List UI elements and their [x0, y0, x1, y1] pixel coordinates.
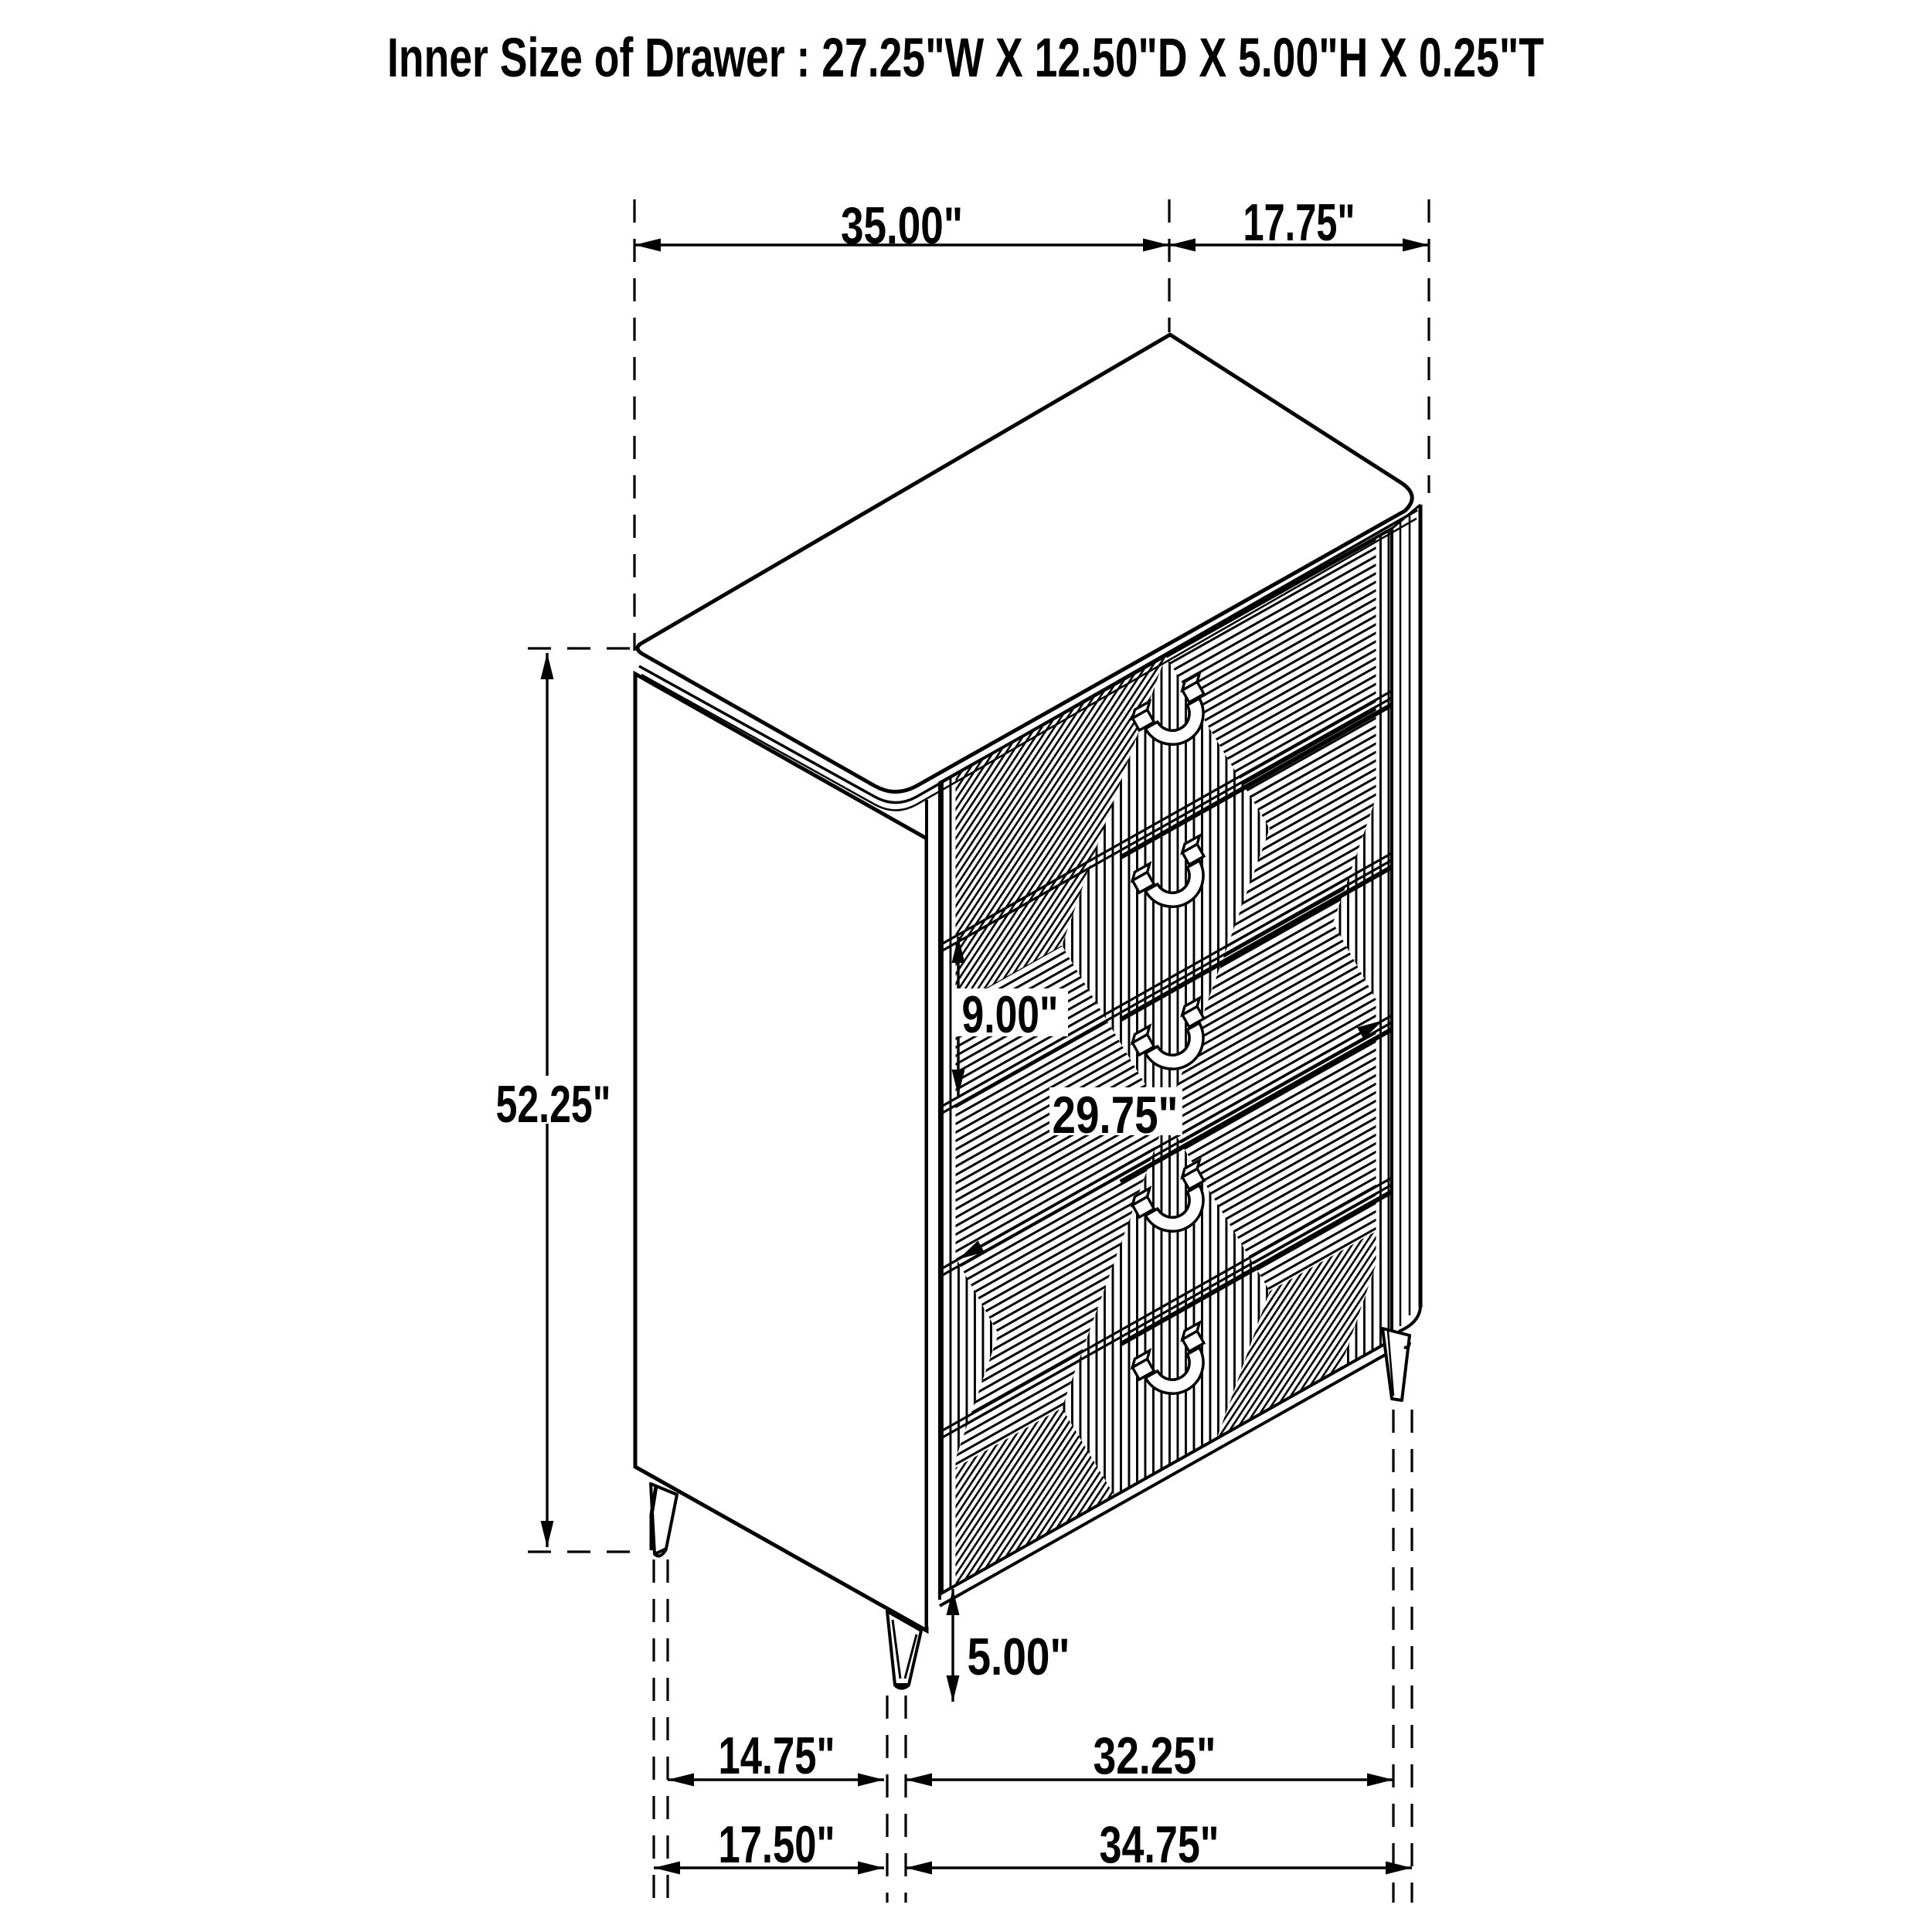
svg-text:17.75": 17.75" [1243, 193, 1355, 252]
svg-text:35.00": 35.00" [841, 196, 963, 255]
svg-text:29.75": 29.75" [1053, 1086, 1179, 1145]
svg-text:14.75": 14.75" [719, 1726, 835, 1785]
svg-text:Inner Size of Drawer : 27.25"W: Inner Size of Drawer : 27.25"W X 12.50"D… [387, 28, 1544, 89]
svg-text:9.00": 9.00" [962, 985, 1059, 1044]
svg-text:17.50": 17.50" [719, 1815, 835, 1874]
svg-text:32.25": 32.25" [1094, 1726, 1216, 1785]
svg-text:5.00": 5.00" [968, 1628, 1070, 1686]
svg-text:34.75": 34.75" [1100, 1815, 1219, 1874]
svg-text:52.25": 52.25" [496, 1075, 611, 1134]
